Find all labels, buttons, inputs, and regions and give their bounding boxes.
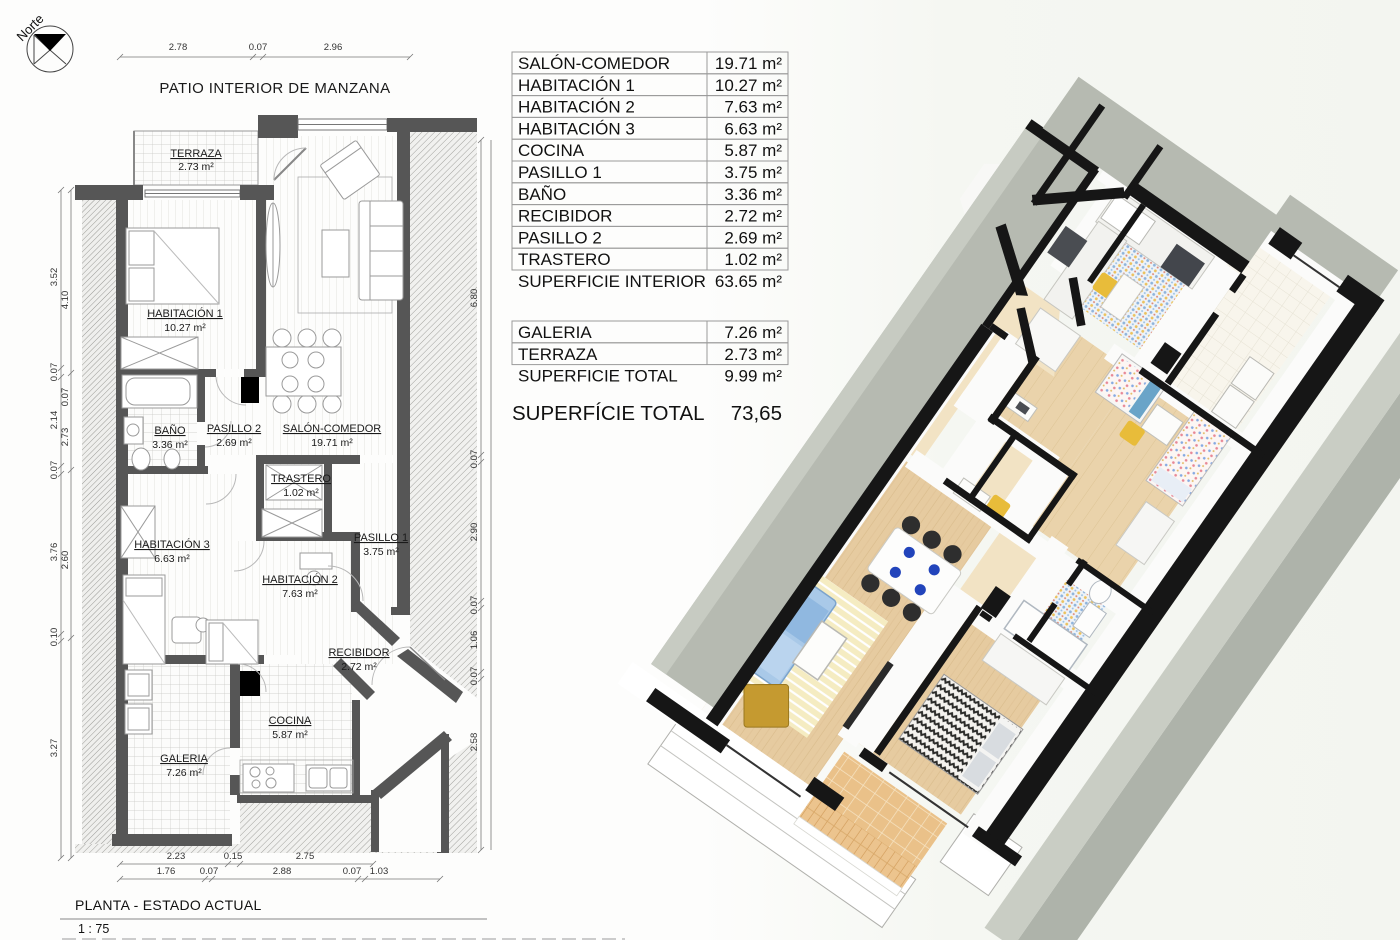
- svg-text:5.87 m²: 5.87 m²: [724, 141, 782, 160]
- svg-text:2.96: 2.96: [324, 42, 343, 53]
- svg-text:73,65: 73,65: [731, 402, 782, 425]
- svg-text:2.78: 2.78: [169, 42, 188, 53]
- svg-text:3.36 m²: 3.36 m²: [152, 439, 188, 451]
- svg-text:BAÑO: BAÑO: [154, 424, 186, 437]
- svg-text:2.72 m²: 2.72 m²: [341, 661, 377, 673]
- svg-text:RECIBIDOR: RECIBIDOR: [518, 207, 612, 226]
- svg-text:0.07: 0.07: [60, 388, 71, 407]
- svg-text:COCINA: COCINA: [269, 715, 312, 727]
- svg-text:3.52: 3.52: [49, 268, 60, 287]
- svg-text:1.02 m²: 1.02 m²: [283, 487, 319, 499]
- svg-text:7.26 m²: 7.26 m²: [724, 323, 782, 342]
- svg-text:2.69 m²: 2.69 m²: [216, 437, 252, 449]
- svg-text:6.63 m²: 6.63 m²: [154, 553, 190, 565]
- svg-text:10.27 m²: 10.27 m²: [715, 76, 782, 95]
- svg-text:BAÑO: BAÑO: [518, 185, 566, 204]
- svg-text:19.71 m²: 19.71 m²: [715, 54, 782, 73]
- svg-text:2.73 m²: 2.73 m²: [724, 345, 782, 364]
- svg-text:PLANTA - ESTADO ACTUAL: PLANTA - ESTADO ACTUAL: [75, 897, 262, 913]
- svg-text:0.10: 0.10: [49, 628, 60, 647]
- svg-text:7.26 m²: 7.26 m²: [166, 767, 202, 779]
- svg-text:PASILLO 1: PASILLO 1: [354, 532, 408, 544]
- svg-text:7.63 m²: 7.63 m²: [282, 588, 318, 600]
- svg-text:1.76: 1.76: [157, 866, 176, 877]
- svg-text:HABITACIÓN 1: HABITACIÓN 1: [147, 307, 223, 320]
- svg-text:TRASTERO: TRASTERO: [271, 473, 331, 485]
- svg-text:1.03: 1.03: [370, 866, 389, 877]
- svg-text:2.73: 2.73: [60, 428, 71, 447]
- svg-text:PATIO INTERIOR DE MANZANA: PATIO INTERIOR DE MANZANA: [159, 80, 390, 97]
- svg-text:PASILLO 2: PASILLO 2: [207, 423, 261, 435]
- svg-text:6.80: 6.80: [469, 289, 480, 308]
- svg-text:HABITACIÓN 3: HABITACIÓN 3: [134, 538, 210, 551]
- svg-text:TERRAZA: TERRAZA: [518, 345, 598, 364]
- svg-text:2.72 m²: 2.72 m²: [724, 207, 782, 226]
- svg-text:2.73 m²: 2.73 m²: [178, 161, 214, 173]
- svg-text:SALÓN-COMEDOR: SALÓN-COMEDOR: [283, 422, 381, 435]
- svg-text:GALERIA: GALERIA: [518, 323, 592, 342]
- svg-text:3.36 m²: 3.36 m²: [724, 185, 782, 204]
- svg-text:TERRAZA: TERRAZA: [170, 148, 222, 160]
- svg-text:10.27 m²: 10.27 m²: [164, 322, 206, 334]
- svg-text:0.07: 0.07: [249, 42, 268, 53]
- svg-text:RECIBIDOR: RECIBIDOR: [328, 647, 389, 659]
- svg-text:0.07: 0.07: [469, 596, 480, 615]
- svg-text:3.76: 3.76: [49, 543, 60, 562]
- svg-text:4.10: 4.10: [60, 291, 71, 310]
- svg-text:HABITACIÓN 3: HABITACIÓN 3: [518, 119, 635, 138]
- svg-text:SUPERFICIE TOTAL: SUPERFICIE TOTAL: [518, 367, 678, 386]
- svg-text:0.07: 0.07: [469, 450, 480, 469]
- svg-text:6.63 m²: 6.63 m²: [724, 119, 782, 138]
- svg-text:PASILLO 2: PASILLO 2: [518, 228, 602, 247]
- svg-text:1 : 75: 1 : 75: [78, 922, 109, 936]
- svg-text:GALERIA: GALERIA: [160, 753, 208, 765]
- svg-text:SALÓN-COMEDOR: SALÓN-COMEDOR: [518, 54, 670, 73]
- svg-text:PASILLO 1: PASILLO 1: [518, 163, 602, 182]
- svg-text:TRASTERO: TRASTERO: [518, 250, 611, 269]
- svg-text:SUPERFÍCIE TOTAL: SUPERFÍCIE TOTAL: [512, 402, 705, 425]
- svg-text:SUPERFICIE INTERIOR: SUPERFICIE INTERIOR: [518, 272, 706, 291]
- svg-text:7.63 m²: 7.63 m²: [724, 98, 782, 117]
- svg-text:HABITACIÓN 2: HABITACIÓN 2: [262, 573, 338, 586]
- svg-text:1.02 m²: 1.02 m²: [724, 250, 782, 269]
- svg-text:2.90: 2.90: [469, 523, 480, 542]
- svg-text:COCINA: COCINA: [518, 141, 585, 160]
- svg-text:0.07: 0.07: [469, 667, 480, 686]
- svg-text:9.99 m²: 9.99 m²: [724, 367, 782, 386]
- svg-text:0.07: 0.07: [49, 461, 60, 480]
- svg-text:1.06: 1.06: [469, 631, 480, 650]
- svg-text:2.23: 2.23: [167, 851, 186, 862]
- svg-text:2.58: 2.58: [469, 733, 480, 752]
- svg-text:5.87 m²: 5.87 m²: [272, 729, 308, 741]
- svg-text:2.88: 2.88: [273, 866, 292, 877]
- svg-text:3.75 m²: 3.75 m²: [724, 163, 782, 182]
- svg-text:2.69 m²: 2.69 m²: [724, 228, 782, 247]
- svg-text:3.75 m²: 3.75 m²: [363, 546, 399, 558]
- svg-text:3.27: 3.27: [49, 739, 60, 758]
- svg-text:2.75: 2.75: [296, 851, 315, 862]
- svg-text:19.71 m²: 19.71 m²: [311, 437, 353, 449]
- svg-text:0.07: 0.07: [49, 363, 60, 382]
- svg-text:0.15: 0.15: [224, 851, 243, 862]
- svg-text:0.07: 0.07: [343, 866, 362, 877]
- svg-text:2.14: 2.14: [49, 411, 60, 430]
- svg-text:HABITACIÓN 2: HABITACIÓN 2: [518, 98, 635, 117]
- svg-text:2.60: 2.60: [60, 551, 71, 570]
- svg-text:0.07: 0.07: [200, 866, 219, 877]
- svg-text:63.65 m²: 63.65 m²: [715, 272, 782, 291]
- svg-text:HABITACIÓN 1: HABITACIÓN 1: [518, 76, 635, 95]
